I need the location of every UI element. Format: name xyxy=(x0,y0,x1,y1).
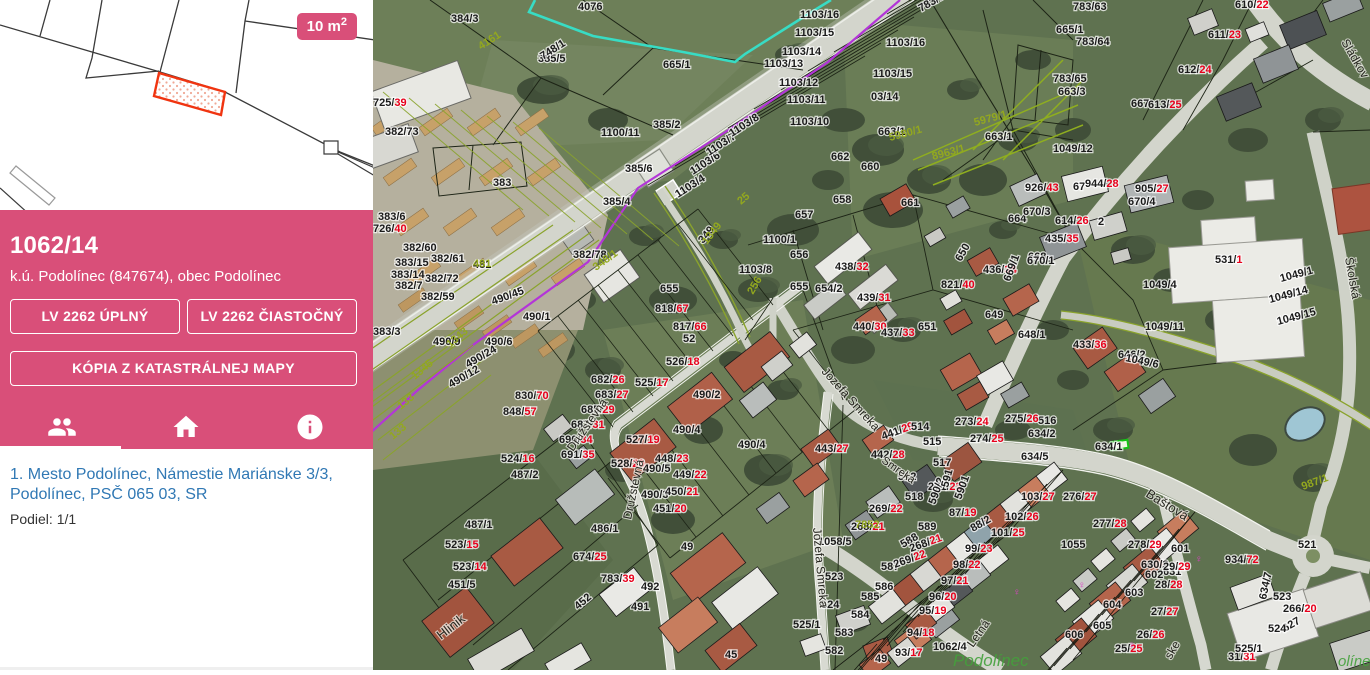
svg-text:610/22: 610/22 xyxy=(1235,0,1269,11)
svg-text:♀: ♀ xyxy=(1195,554,1203,565)
svg-text:691/35: 691/35 xyxy=(561,449,595,461)
svg-text:658: 658 xyxy=(833,194,851,206)
svg-text:98/22: 98/22 xyxy=(953,559,981,571)
svg-text:651: 651 xyxy=(918,321,936,333)
svg-text:674/25: 674/25 xyxy=(573,551,607,563)
svg-text:649: 649 xyxy=(985,309,1003,321)
svg-text:1103/11: 1103/11 xyxy=(787,94,826,106)
svg-text:450/21: 450/21 xyxy=(665,486,699,498)
svg-text:449/22: 449/22 xyxy=(673,469,707,481)
svg-text:1103/13: 1103/13 xyxy=(764,58,803,70)
svg-text:1049/4: 1049/4 xyxy=(1143,279,1178,291)
svg-text:656: 656 xyxy=(790,249,808,261)
svg-text:93/17: 93/17 xyxy=(895,647,923,659)
svg-text:♀: ♀ xyxy=(1013,587,1021,598)
svg-text:2: 2 xyxy=(1098,216,1104,228)
svg-text:7852: 7852 xyxy=(855,519,879,531)
svg-text:634/1: 634/1 xyxy=(1095,441,1123,453)
svg-text:665/1: 665/1 xyxy=(1056,24,1084,36)
svg-text:783/65: 783/65 xyxy=(1053,73,1087,85)
svg-text:67: 67 xyxy=(1073,181,1085,193)
svg-text:670/1: 670/1 xyxy=(1027,255,1055,267)
svg-text:783/39: 783/39 xyxy=(601,573,635,585)
svg-text:451/20: 451/20 xyxy=(653,503,687,515)
svg-text:525/1: 525/1 xyxy=(793,619,821,631)
svg-text:101/25: 101/25 xyxy=(991,527,1025,539)
svg-text:661: 661 xyxy=(901,197,919,209)
svg-text:585: 585 xyxy=(861,591,879,603)
svg-text:934/72: 934/72 xyxy=(1225,554,1259,566)
svg-text:667: 667 xyxy=(1131,98,1149,110)
svg-text:273/24: 273/24 xyxy=(955,416,990,428)
svg-text:531/1: 531/1 xyxy=(1215,254,1243,266)
svg-text:613/25: 613/25 xyxy=(1148,99,1182,111)
svg-text:634/2: 634/2 xyxy=(1028,428,1056,440)
svg-text:433/36: 433/36 xyxy=(1073,339,1107,351)
svg-text:45: 45 xyxy=(725,649,737,661)
svg-text:1049/12: 1049/12 xyxy=(1053,143,1093,155)
svg-text:525/17: 525/17 xyxy=(635,377,669,389)
svg-text:382/59: 382/59 xyxy=(421,291,455,303)
svg-text:1103/15: 1103/15 xyxy=(795,27,834,39)
svg-text:583: 583 xyxy=(835,627,853,639)
svg-text:1103/12: 1103/12 xyxy=(779,77,818,89)
svg-text:655: 655 xyxy=(790,281,808,293)
svg-text:1103/8: 1103/8 xyxy=(739,264,772,276)
svg-text:266/20: 266/20 xyxy=(1283,603,1317,615)
svg-text:663/3: 663/3 xyxy=(1058,86,1086,98)
svg-text:♀: ♀ xyxy=(1128,640,1136,651)
svg-text:670/4: 670/4 xyxy=(1128,196,1156,208)
svg-text:99/23: 99/23 xyxy=(965,543,993,555)
svg-text:385/6: 385/6 xyxy=(625,163,653,175)
svg-text:♀: ♀ xyxy=(1078,580,1086,591)
svg-text:383/14: 383/14 xyxy=(391,269,426,281)
svg-text:481: 481 xyxy=(473,258,491,270)
svg-text:612/24: 612/24 xyxy=(1178,64,1213,76)
svg-text:382/73: 382/73 xyxy=(385,126,419,138)
svg-text:523: 523 xyxy=(1273,591,1291,603)
svg-text:443/27: 443/27 xyxy=(815,443,849,455)
svg-text:525/1: 525/1 xyxy=(1235,643,1263,655)
svg-text:523/15: 523/15 xyxy=(445,539,479,551)
svg-text:383/3: 383/3 xyxy=(373,326,401,338)
svg-text:726/40: 726/40 xyxy=(373,223,407,235)
svg-text:514: 514 xyxy=(911,421,930,433)
svg-text:486/1: 486/1 xyxy=(591,523,619,535)
svg-text:276/27: 276/27 xyxy=(1063,491,1097,503)
svg-text:660: 660 xyxy=(861,161,879,173)
svg-text:518: 518 xyxy=(905,491,923,503)
svg-text:1103/16: 1103/16 xyxy=(800,9,839,21)
svg-text:451/5: 451/5 xyxy=(448,579,476,591)
svg-text:435/35: 435/35 xyxy=(1045,233,1079,245)
svg-text:275/26: 275/26 xyxy=(1005,413,1039,425)
svg-text:601: 601 xyxy=(1171,543,1189,555)
svg-text:278/29: 278/29 xyxy=(1128,539,1162,551)
svg-text:102/26: 102/26 xyxy=(1005,511,1039,523)
svg-text:448/23: 448/23 xyxy=(655,453,689,465)
svg-text:384/3: 384/3 xyxy=(451,13,479,25)
svg-text:383: 383 xyxy=(493,177,511,189)
svg-text:277/28: 277/28 xyxy=(1093,518,1127,530)
svg-text:648/1: 648/1 xyxy=(1018,329,1046,341)
svg-text:103/27: 103/27 xyxy=(1021,491,1055,503)
svg-text:1100/11: 1100/11 xyxy=(601,127,640,139)
svg-text:582: 582 xyxy=(825,645,843,657)
svg-text:1103/15: 1103/15 xyxy=(873,68,912,80)
svg-text:437/33: 437/33 xyxy=(881,327,915,339)
svg-text:487/1: 487/1 xyxy=(465,519,493,531)
svg-text:490/6: 490/6 xyxy=(485,336,513,348)
svg-text:515: 515 xyxy=(923,436,941,448)
svg-text:269/22: 269/22 xyxy=(869,503,903,515)
svg-text:663/1: 663/1 xyxy=(985,131,1013,143)
svg-text:670/3: 670/3 xyxy=(1023,206,1051,218)
svg-text:03/14: 03/14 xyxy=(871,91,899,103)
svg-text:Podolínec: Podolínec xyxy=(953,651,1029,670)
svg-text:95/19: 95/19 xyxy=(919,605,947,617)
svg-text:1049/11: 1049/11 xyxy=(1145,321,1184,333)
svg-text:490/4: 490/4 xyxy=(673,424,701,436)
svg-text:27/27: 27/27 xyxy=(1151,606,1179,618)
svg-text:665/1: 665/1 xyxy=(663,59,691,71)
svg-text:52: 52 xyxy=(683,333,695,345)
svg-text:49: 49 xyxy=(875,653,887,665)
svg-text:604: 604 xyxy=(1103,599,1122,611)
svg-text:49: 49 xyxy=(681,541,693,553)
svg-text:439/31: 439/31 xyxy=(857,292,891,304)
svg-text:87/19: 87/19 xyxy=(949,507,977,519)
svg-text:603: 603 xyxy=(1125,587,1143,599)
svg-text:1100/1: 1100/1 xyxy=(763,234,796,246)
svg-text:438/32: 438/32 xyxy=(835,261,869,273)
svg-text:1103/16: 1103/16 xyxy=(886,37,925,49)
svg-text:527/19: 527/19 xyxy=(626,434,660,446)
svg-text:491: 491 xyxy=(631,601,649,613)
svg-text:584: 584 xyxy=(851,609,870,621)
svg-text:523/14: 523/14 xyxy=(453,561,488,573)
svg-text:492: 492 xyxy=(641,581,659,593)
svg-text:848/57: 848/57 xyxy=(503,406,537,418)
svg-text:385/2: 385/2 xyxy=(653,119,681,131)
svg-text:821/40: 821/40 xyxy=(941,279,975,291)
svg-text:490/2: 490/2 xyxy=(693,389,721,401)
svg-text:382/72: 382/72 xyxy=(425,273,459,285)
svg-text:654/2: 654/2 xyxy=(815,283,843,295)
svg-text:783/64: 783/64 xyxy=(1076,36,1111,48)
svg-text:682/26: 682/26 xyxy=(591,374,625,386)
svg-text:817/66: 817/66 xyxy=(673,321,707,333)
svg-text:944/28: 944/28 xyxy=(1085,178,1119,190)
svg-text:614/26: 614/26 xyxy=(1055,215,1089,227)
svg-text:29/29: 29/29 xyxy=(1163,561,1191,573)
svg-text:524/16: 524/16 xyxy=(501,453,535,465)
svg-text:1103/14: 1103/14 xyxy=(782,46,822,58)
svg-text:274/25: 274/25 xyxy=(970,433,1004,445)
svg-text:818/67: 818/67 xyxy=(655,303,689,315)
svg-text:662: 662 xyxy=(831,151,849,163)
svg-text:657: 657 xyxy=(795,209,813,221)
svg-text:382/61: 382/61 xyxy=(431,253,465,265)
svg-text:383/15: 383/15 xyxy=(395,257,429,269)
svg-text:1103/10: 1103/10 xyxy=(790,116,829,128)
svg-text:611/23: 611/23 xyxy=(1208,29,1241,41)
svg-text:517: 517 xyxy=(933,457,951,469)
svg-text:521: 521 xyxy=(1298,539,1316,551)
svg-text:94/18: 94/18 xyxy=(907,627,935,639)
svg-text:97/21: 97/21 xyxy=(941,575,969,587)
svg-text:605: 605 xyxy=(1093,620,1111,632)
svg-text:487/2: 487/2 xyxy=(511,469,539,481)
svg-text:655: 655 xyxy=(660,283,678,295)
svg-text:490/4: 490/4 xyxy=(738,439,766,451)
svg-text:385/4: 385/4 xyxy=(603,196,631,208)
svg-text:725/39: 725/39 xyxy=(373,97,407,109)
svg-text:490/1: 490/1 xyxy=(523,311,551,323)
svg-text:516: 516 xyxy=(1038,415,1056,427)
svg-text:26/26: 26/26 xyxy=(1137,629,1165,641)
svg-text:783/63: 783/63 xyxy=(1073,1,1107,13)
svg-text:905/27: 905/27 xyxy=(1135,183,1169,195)
svg-text:1055: 1055 xyxy=(1061,539,1085,551)
svg-text:524: 524 xyxy=(1268,623,1287,635)
svg-text:526/18: 526/18 xyxy=(666,356,700,368)
svg-text:634/5: 634/5 xyxy=(1021,451,1049,463)
svg-text:382/7: 382/7 xyxy=(395,280,423,292)
svg-text:830/70: 830/70 xyxy=(515,390,549,402)
svg-text:589: 589 xyxy=(918,521,936,533)
svg-text:28/28: 28/28 xyxy=(1155,579,1183,591)
svg-text:926/43: 926/43 xyxy=(1025,182,1059,194)
svg-text:4076: 4076 xyxy=(578,1,602,13)
svg-text:96/20: 96/20 xyxy=(929,591,957,603)
svg-text:383/6: 383/6 xyxy=(378,211,406,223)
svg-text:606: 606 xyxy=(1065,629,1083,641)
svg-text:olínec: olínec xyxy=(1338,653,1370,670)
